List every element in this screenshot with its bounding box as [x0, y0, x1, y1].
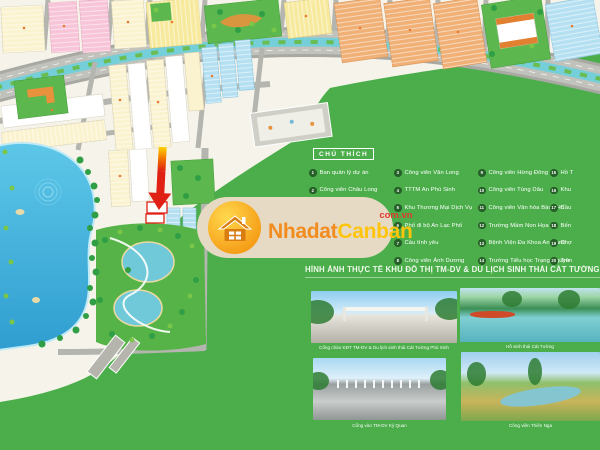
legend-item: 15 Hồ T — [550, 164, 573, 182]
photo-caption: Cổng vào TM-DV Kỳ Quan — [313, 423, 446, 428]
legend-item-label: Khu Thương Mại Dịch Vụ — [405, 205, 473, 211]
brand-name-part2: Canban — [337, 220, 412, 243]
watermark: com.vn NhadatCanban — [197, 197, 393, 258]
legend-item-number: 1 — [309, 169, 317, 177]
legend-item-number: 19 — [550, 239, 558, 247]
legend-column-4: 15 Hồ T 16 Khu 17 Cầu 18 Bến 19 Chợ 20 T… — [550, 164, 573, 270]
legend-item-number: 2 — [309, 187, 317, 195]
tree-blob — [558, 290, 580, 308]
legend-item-label: Khu — [561, 187, 572, 193]
photo-caption: Hồ sinh thái Cát Tường — [460, 344, 600, 349]
photo-eco-lake — [460, 288, 600, 342]
stream — [499, 382, 581, 410]
legend-item-number: 13 — [478, 239, 486, 247]
legend-title: CHÚ THÍCH — [313, 148, 374, 160]
tree-blob — [435, 298, 457, 320]
house-icon — [215, 208, 255, 248]
fountain-jets — [337, 380, 422, 387]
legend-item-label: Công viên Tùng Dâu — [489, 187, 544, 193]
legend-item-number: 14 — [478, 257, 486, 265]
legend-item-label: Bến — [561, 223, 572, 229]
legend-item-label: Công viên Văn Long — [405, 170, 459, 176]
gate-structure — [343, 307, 428, 312]
section-heading: HÌNH ẢNH THỰC TẾ KHU ĐÔ THỊ TM-DV & DU L… — [305, 265, 600, 278]
photo-plaza-fountain — [313, 358, 446, 420]
photo-caption: Công viên Thiên Nga — [461, 423, 600, 428]
gate-post — [425, 307, 428, 322]
legend-item-label: Công viên Hừng Đông — [489, 170, 549, 176]
legend-item-number: 17 — [550, 204, 558, 212]
tree-blob — [528, 358, 542, 386]
legend-item: 3 Công viên Văn Long — [394, 164, 472, 182]
legend-item: 1 Ban quản lý dự án — [309, 164, 377, 182]
legend-column-1: 1 Ban quản lý dự án 2 Công viên Châu Lon… — [309, 164, 377, 199]
legend-item-label: Hồ T — [561, 170, 574, 176]
orange-building-park — [14, 75, 68, 119]
legend-item-number: 12 — [478, 222, 486, 230]
legend-item-number: 15 — [550, 169, 558, 177]
photo-caption: Cổng chào KĐT TM-DV & Du lịch sinh thái … — [311, 345, 457, 350]
brand-text: com.vn NhadatCanban — [268, 213, 413, 243]
legend-item: 17 Cầu — [550, 199, 573, 217]
legend-item-number: 11 — [478, 204, 486, 212]
legend-item-label: Công viên Ánh Dương — [405, 258, 465, 264]
legend-item-number: 20 — [550, 257, 558, 265]
masterplan-page: CHÚ THÍCH 1 Ban quản lý dự án 2 Công viê… — [0, 0, 600, 450]
legend-item-number: 16 — [550, 187, 558, 195]
legend-item-number: 18 — [550, 222, 558, 230]
legend-item-label: Chợ — [561, 240, 573, 246]
tree-blob — [467, 362, 486, 387]
lake — [0, 143, 95, 350]
tree-blob — [313, 372, 329, 391]
legend-item-label: Trư — [561, 258, 570, 264]
legend-item: 16 Khu — [550, 182, 573, 200]
legend-item-label: Trường Mầm Non Họa Mi — [489, 223, 557, 229]
legend-item-number: 9 — [478, 169, 486, 177]
brand-name-part1: Nhadat — [268, 220, 337, 243]
photo-park-stream — [461, 352, 600, 421]
legend-item-label: Phố đi bộ An Lạc Phố — [405, 223, 463, 229]
legend-item-number: 8 — [394, 257, 402, 265]
brand-name: NhadatCanban — [268, 220, 413, 243]
house-logo-icon — [208, 201, 261, 254]
brand-domain: com.vn — [379, 210, 412, 221]
legend-item-label: Công viên Châu Long — [320, 187, 378, 193]
legend-item: 18 Bến — [550, 217, 573, 235]
tree-blob — [430, 370, 446, 390]
legend-item-number: 10 — [478, 187, 486, 195]
legend-item-number: 4 — [394, 187, 402, 195]
photo-entrance-gate — [311, 291, 457, 343]
legend-item-label: Cầu — [561, 205, 572, 211]
red-boat — [470, 311, 515, 318]
legend-item-number: 3 — [394, 169, 402, 177]
legend-item: 4 TTTM An Phú Sinh — [394, 182, 472, 200]
legend-item: 19 Chợ — [550, 234, 573, 252]
tree-blob — [502, 291, 522, 307]
legend-item-label: TTTM An Phú Sinh — [405, 187, 456, 193]
legend-item-label: Ban quản lý dự án — [320, 170, 369, 176]
tree-blob — [311, 300, 334, 323]
gate-post — [343, 307, 346, 322]
